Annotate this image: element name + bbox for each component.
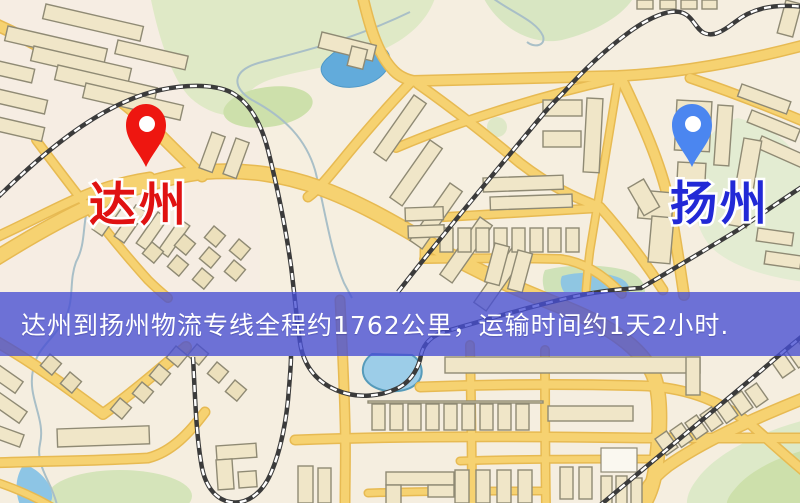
pin-hole (685, 116, 701, 132)
map-view[interactable]: 达州 扬州 达州到扬州物流专线全程约1762公里，运输时间约1天2小时. (0, 0, 800, 503)
info-banner: 达州到扬州物流专线全程约1762公里，运输时间约1天2小时. (0, 292, 800, 356)
destination-city-label: 扬州 (670, 177, 770, 232)
origin-city-label: 达州 (89, 178, 189, 233)
banner-text: 达州到扬州物流专线全程约1762公里，运输时间约1天2小时. (21, 306, 729, 342)
pin-hole (139, 116, 155, 132)
map-canvas[interactable]: 达州 扬州 (0, 0, 800, 503)
